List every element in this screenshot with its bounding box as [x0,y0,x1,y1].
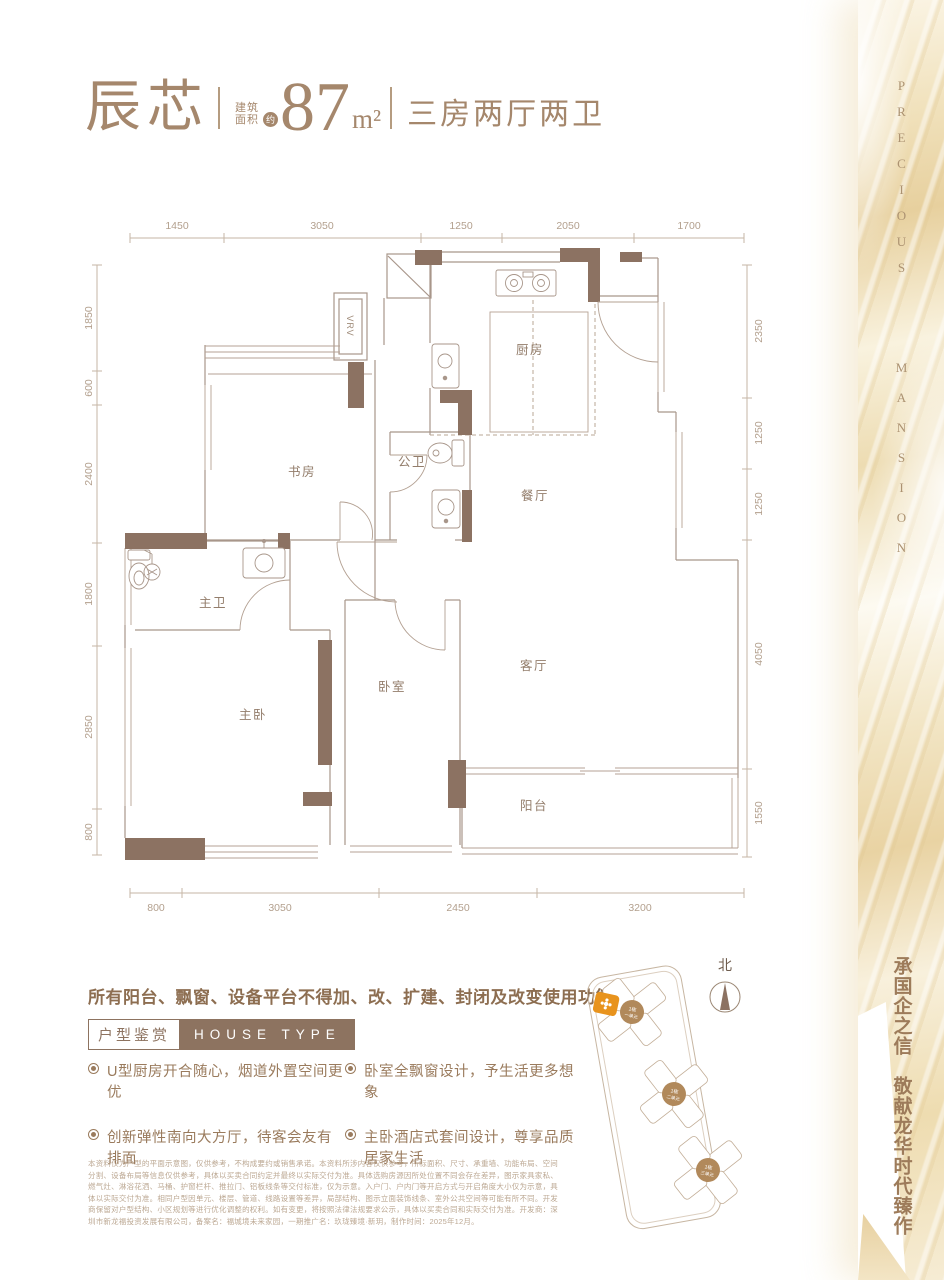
svg-text:600: 600 [83,379,95,397]
bullet-icon [345,1063,356,1074]
kitchen-sink-icon [432,344,459,388]
section-badge-en: HOUSE TYPE [180,1019,355,1050]
building-cluster-3: 1栋 三单元 [667,1129,749,1211]
guest-basin-icon [432,490,460,528]
dimension-ruler-left [92,265,102,855]
section-badge-cn: 户型鉴赏 [88,1019,180,1050]
svg-text:1800: 1800 [83,582,95,606]
wall-lines [125,252,738,848]
decorative-gold-band: PRECIOUS MANSION 承国企之信 敬献龙华时代臻作 [858,0,944,1280]
section-badge: 户型鉴赏 HOUSE TYPE [88,1019,355,1050]
site-plan: 1栋 一单元 1栋 二单元 1栋 三单元 北 [560,940,800,1280]
usage-notice: 所有阳台、飘窗、设备平台不得加、改、扩建、封闭及改变使用功能 [88,983,613,1008]
dimension-ruler-bottom [130,888,744,898]
room-label-guest-bath: 公卫 [398,455,426,469]
building-cluster-1: 1栋 一单元 [587,970,673,1053]
dimension-labels-right: 2350 1250 1250 4050 1550 [753,319,765,825]
guest-toilet-icon [428,440,464,466]
feature-item: 卧室全飘窗设计，予生活更多想象 [345,1060,588,1102]
band-word-mansion: MANSION [893,360,909,570]
svg-text:2050: 2050 [556,220,580,232]
svg-text:2400: 2400 [83,462,95,486]
bullet-icon [88,1063,99,1074]
master-toilet-icon [128,550,150,589]
dimension-ruler-right [742,265,752,857]
room-label-kitchen: 厨房 [516,342,544,357]
north-compass: 北 [710,957,740,1012]
svg-text:4050: 4050 [753,642,765,666]
bullet-icon [88,1129,99,1140]
feature-text: U型厨房开合随心，烟道外置空间更优 [107,1060,345,1102]
building-cluster-2: 1栋 二单元 [633,1053,715,1135]
vrv-shaft-label: VRV [345,315,355,336]
band-slogan: 承国企之信 敬献龙华时代臻作 [888,956,915,1236]
unit-name: 辰芯 [85,80,209,136]
dimension-labels-left: 1850 600 2400 1800 2850 800 [83,306,95,841]
room-label-balcony: 阳台 [520,798,548,813]
svg-text:1250: 1250 [753,421,765,445]
floor-plan: 1450 3050 1250 2050 1700 1850 600 2400 1… [80,195,780,940]
area-unit: m² [352,104,381,135]
north-label: 北 [718,957,732,973]
svg-text:1250: 1250 [753,492,765,516]
svg-text:1850: 1850 [83,306,95,330]
band-word-precious: PRECIOUS [893,78,909,286]
dimension-labels-top: 1450 3050 1250 2050 1700 [165,220,701,232]
room-label-master-bath: 主卫 [199,596,227,610]
approx-badge: 约 [263,112,278,127]
svg-text:3050: 3050 [310,220,334,232]
layout-description: 三房两厅两卫 [407,89,605,133]
svg-text:800: 800 [83,823,95,841]
dimension-labels-bottom: 800 3050 2450 3200 [147,902,652,914]
feature-text: 卧室全飘窗设计，予生活更多想象 [364,1060,588,1102]
area-label-top: 建筑 [235,102,259,115]
header-divider [390,87,392,129]
header-divider [218,87,220,129]
feature-item: U型厨房开合随心，烟道外置空间更优 [88,1060,345,1102]
svg-text:3050: 3050 [268,902,292,914]
feature-list: U型厨房开合随心，烟道外置空间更优 卧室全飘窗设计，予生活更多想象 创新弹性南向… [88,1060,588,1168]
svg-text:1550: 1550 [753,801,765,825]
area-label-bottom: 面积 [235,114,259,127]
svg-text:1450: 1450 [165,220,189,232]
svg-text:800: 800 [147,902,165,914]
area-group: 建筑 面积 约 87 m² [235,79,381,136]
svg-text:2850: 2850 [83,715,95,739]
svg-text:2450: 2450 [446,902,470,914]
bullet-icon [345,1129,356,1140]
svg-text:1700: 1700 [677,220,701,232]
room-label-bedroom: 卧室 [378,679,406,694]
svg-text:2350: 2350 [753,319,765,343]
room-label-dining: 餐厅 [521,488,549,503]
plan-header: 辰芯 建筑 面积 约 87 m² 三房两厅两卫 [85,72,605,144]
svg-text:1250: 1250 [449,220,473,232]
legal-disclaimer: 本资料仅为户型的平面示意图，仅供参考，不构成要约或销售承诺。本资料所涉内容仅供参… [88,1158,558,1227]
area-value: 87 [280,79,350,136]
svg-text:3200: 3200 [628,902,652,914]
windows [125,302,738,858]
area-label: 建筑 面积 [235,102,259,127]
room-label-master-bedroom: 主卧 [239,708,267,722]
kitchen-counter [490,312,588,432]
room-label-study: 书房 [288,464,316,479]
kitchen-stove-icon [496,270,556,296]
room-label-living: 客厅 [520,658,548,673]
dimension-ruler-top [130,233,744,243]
